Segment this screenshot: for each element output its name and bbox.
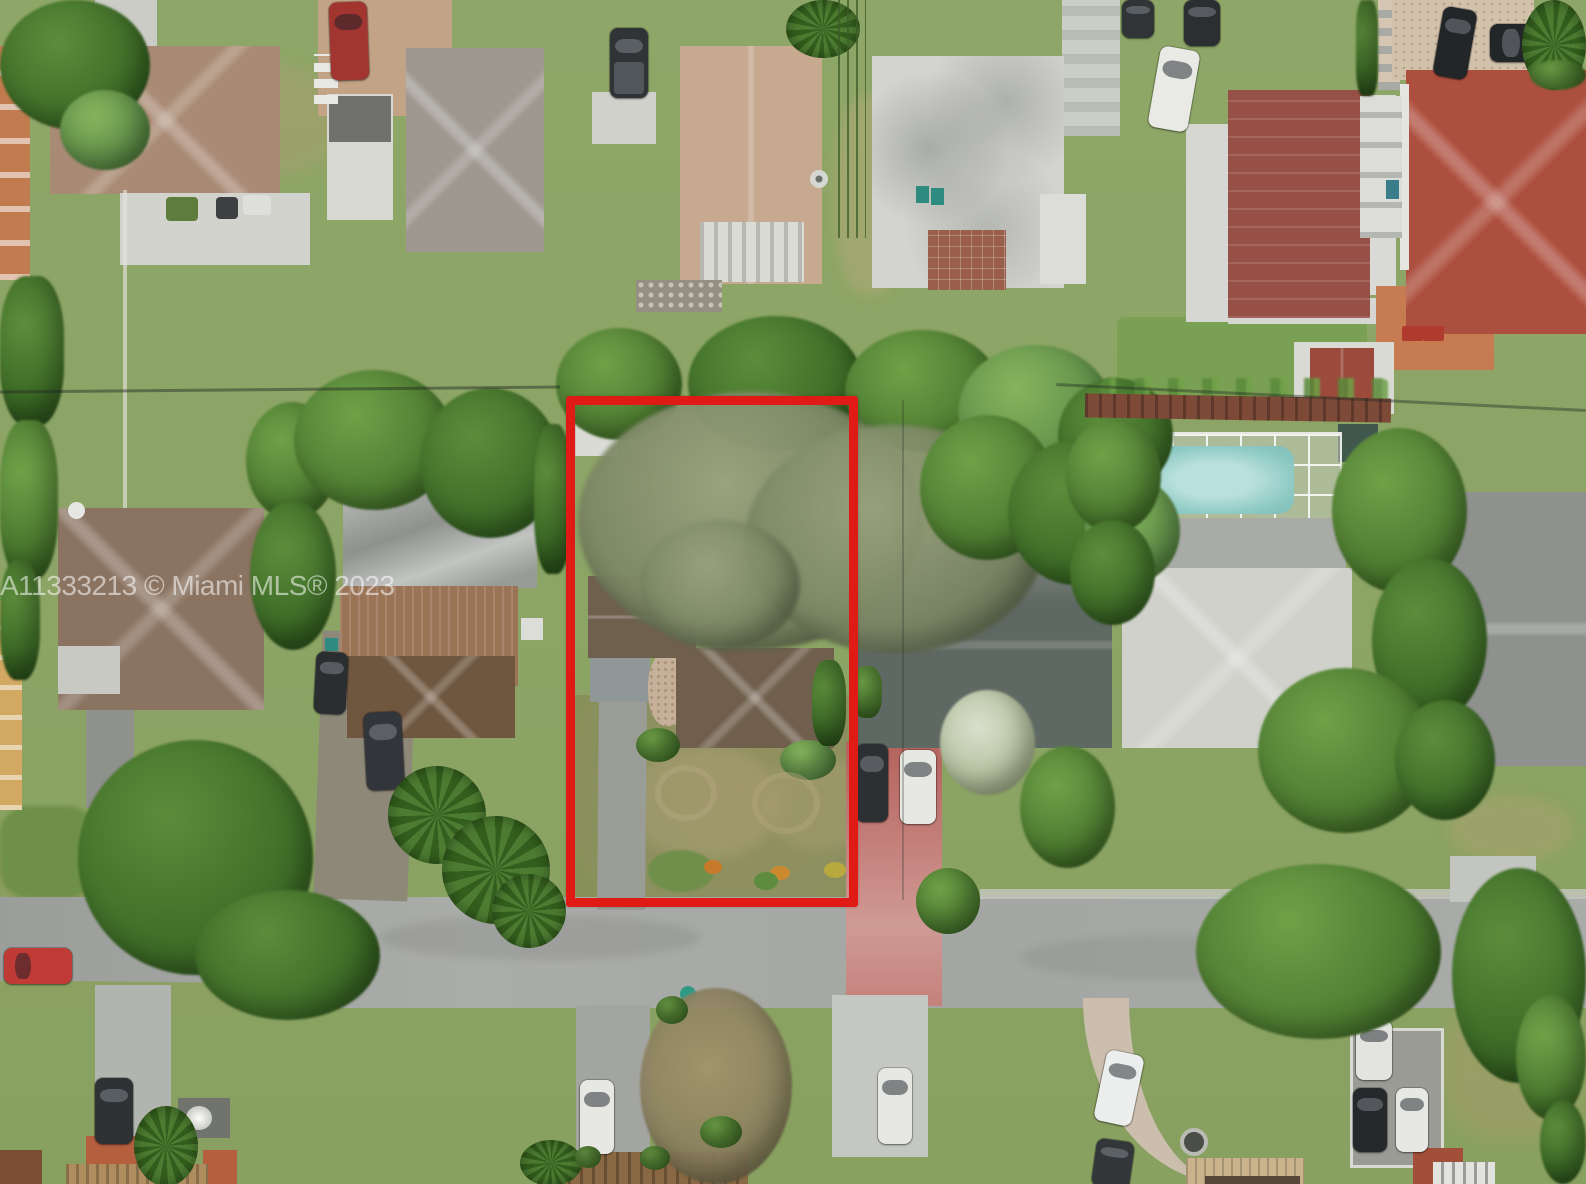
watermark: A11333213 © Miami MLS® 2023 <box>0 570 395 602</box>
subject-lot-boundary <box>566 396 858 907</box>
power-line <box>0 386 560 394</box>
chain-fence-line <box>902 400 904 900</box>
aerial-photo: A11333213 © Miami MLS® 2023 <box>0 0 1586 1184</box>
